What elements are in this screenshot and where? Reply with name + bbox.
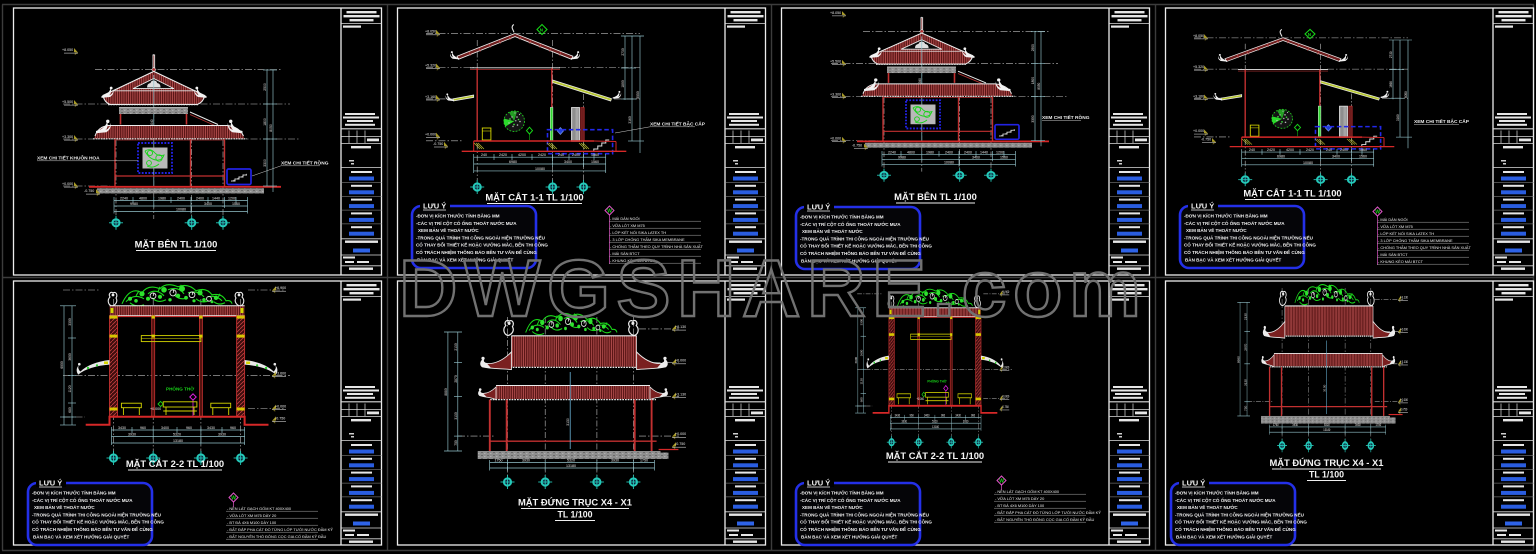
svg-text:MẶT ĐỨNG TRỤC X4 - X1: MẶT ĐỨNG TRỤC X4 - X1	[518, 497, 632, 508]
svg-text:MẶT BÊN TL 1/100: MẶT BÊN TL 1/100	[894, 191, 977, 202]
svg-text:TL 1/100: TL 1/100	[1309, 470, 1344, 480]
svg-text:MẶT CẮT 2-2 TL 1/100: MẶT CẮT 2-2 TL 1/100	[886, 450, 984, 461]
svg-text:MẶT CẮT 2-2 TL 1/100: MẶT CẮT 2-2 TL 1/100	[126, 458, 224, 469]
svg-text:XEM CHI TIẾT RỒNG: XEM CHI TIẾT RỒNG	[281, 160, 329, 167]
svg-text:TL 1/100: TL 1/100	[557, 510, 592, 520]
svg-text:MẶT CẮT 1-1 TL 1/100: MẶT CẮT 1-1 TL 1/100	[1243, 188, 1341, 199]
svg-text:MẶT BÊN TL 1/100: MẶT BÊN TL 1/100	[135, 239, 218, 250]
svg-text:MẶT CẮT 1-1 TL 1/100: MẶT CẮT 1-1 TL 1/100	[485, 192, 583, 203]
svg-text:XEM CHI TIẾT BẬC CẤP: XEM CHI TIẾT BẬC CẤP	[650, 121, 706, 128]
svg-text:XEM CHI TIẾT RỒNG: XEM CHI TIẾT RỒNG	[1042, 114, 1090, 121]
svg-text:MẶT ĐỨNG TRỤC X4 - X1: MẶT ĐỨNG TRỤC X4 - X1	[1269, 457, 1383, 468]
svg-text:XEM CHI TIẾT BẬC CẤP: XEM CHI TIẾT BẬC CẤP	[1414, 118, 1470, 125]
